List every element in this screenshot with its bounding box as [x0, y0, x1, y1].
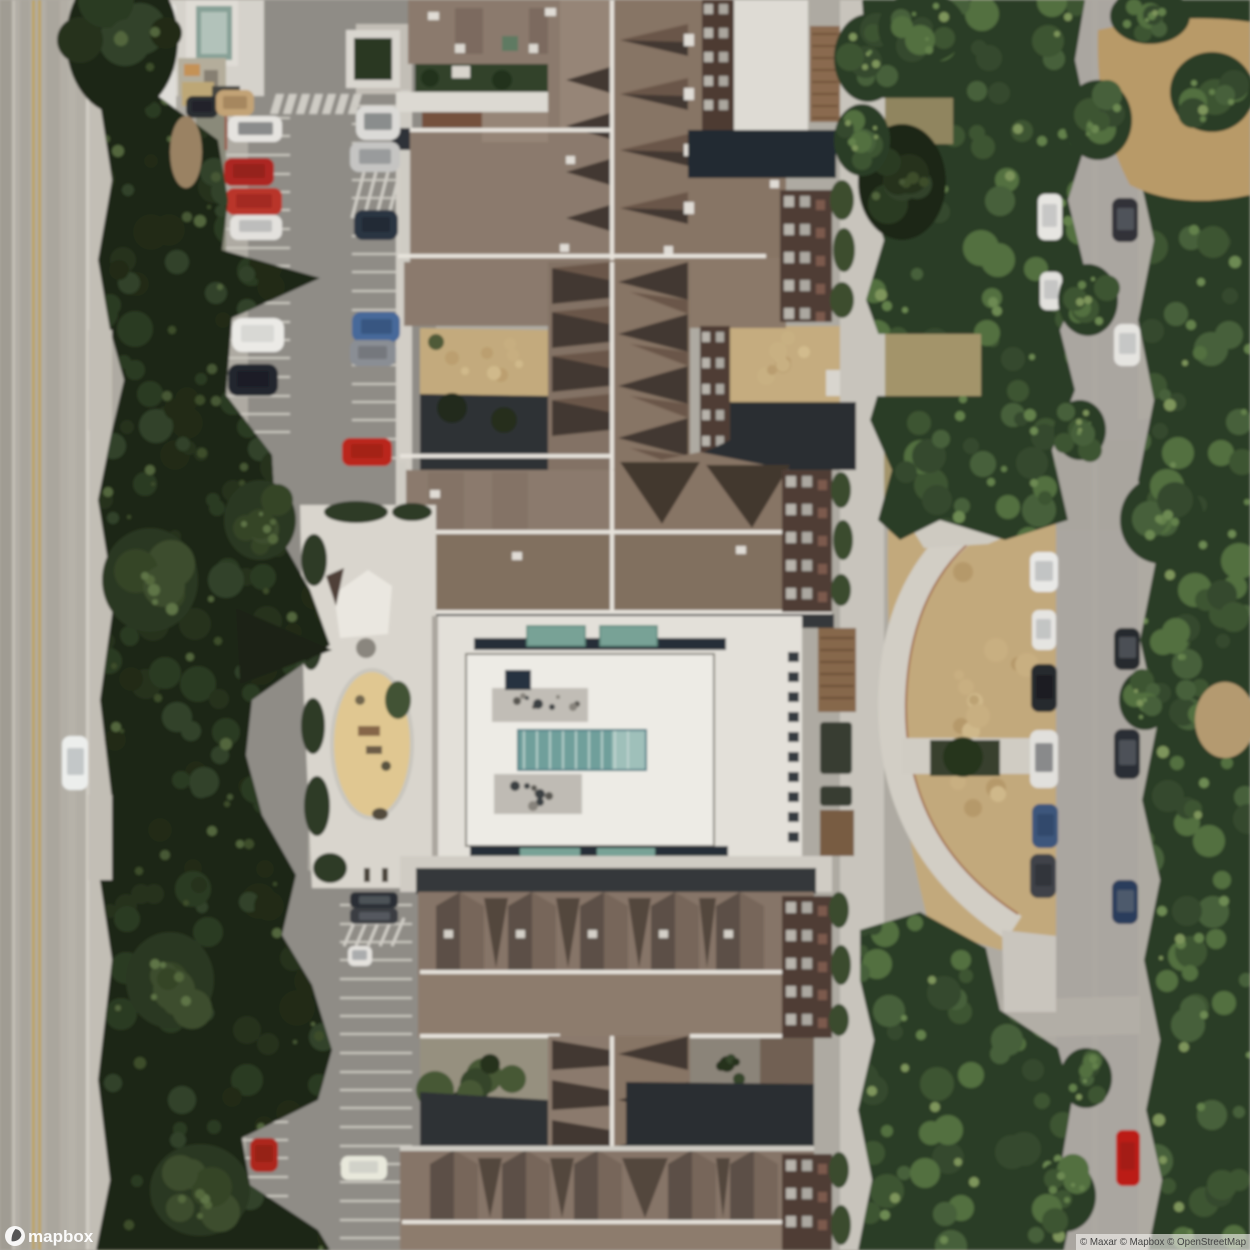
svg-text:mapbox: mapbox [28, 1227, 94, 1246]
svg-text:© Maxar © Mapbox © OpenStreetM: © Maxar © Mapbox © OpenStreetMap [1080, 1236, 1246, 1248]
